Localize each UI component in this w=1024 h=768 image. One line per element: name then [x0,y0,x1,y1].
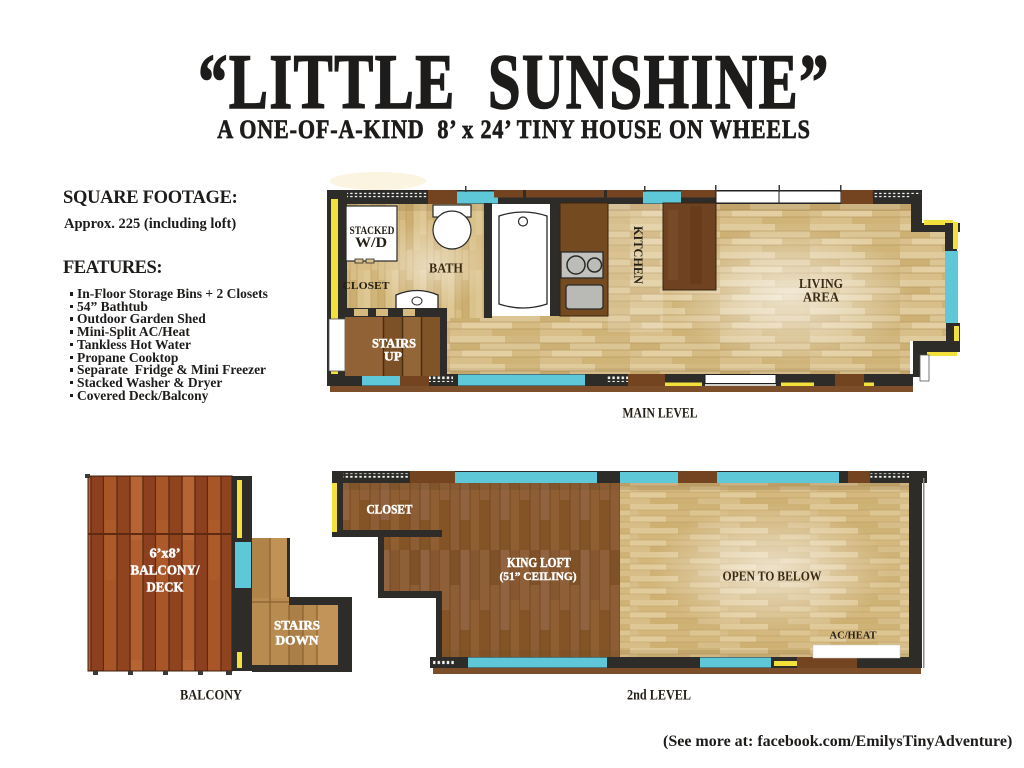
svg-text:BALCONY/: BALCONY/ [131,564,201,579]
svg-text:AREA: AREA [803,291,840,306]
svg-text:AC/HEAT: AC/HEAT [830,631,877,642]
svg-text:UP: UP [384,349,402,364]
svg-text:W/D: W/D [355,235,387,251]
svg-text:DOWN: DOWN [276,634,319,648]
svg-text:OPEN TO BELOW: OPEN TO BELOW [723,569,822,584]
svg-text:BATH: BATH [429,261,463,276]
svg-text:BALCONY: BALCONY [180,688,242,704]
svg-text:KITCHEN: KITCHEN [631,226,645,284]
svg-text:STAIRS: STAIRS [274,619,320,633]
svg-text:CLOSET: CLOSET [367,503,414,517]
svg-text:(51” CEILING): (51” CEILING) [500,569,577,583]
svg-text:MAIN LEVEL: MAIN LEVEL [623,406,698,422]
svg-text:CLOSET: CLOSET [343,281,390,292]
svg-text:DECK: DECK [147,581,184,596]
svg-text:2nd LEVEL: 2nd LEVEL [627,688,691,704]
svg-text:6’x8’: 6’x8’ [150,547,181,562]
